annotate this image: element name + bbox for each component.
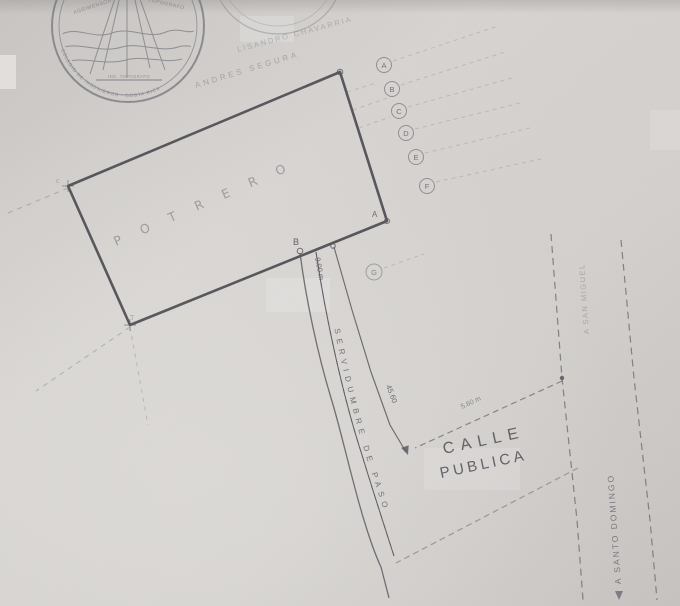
scanned-survey-plat: AGRIMENSOR TOPOGRAFO ING. TOPOGRAFO COLE… [0, 0, 680, 606]
plat-drawing: AGRIMENSOR TOPOGRAFO ING. TOPOGRAFO COLE… [0, 0, 680, 606]
paper-grain [0, 0, 680, 606]
